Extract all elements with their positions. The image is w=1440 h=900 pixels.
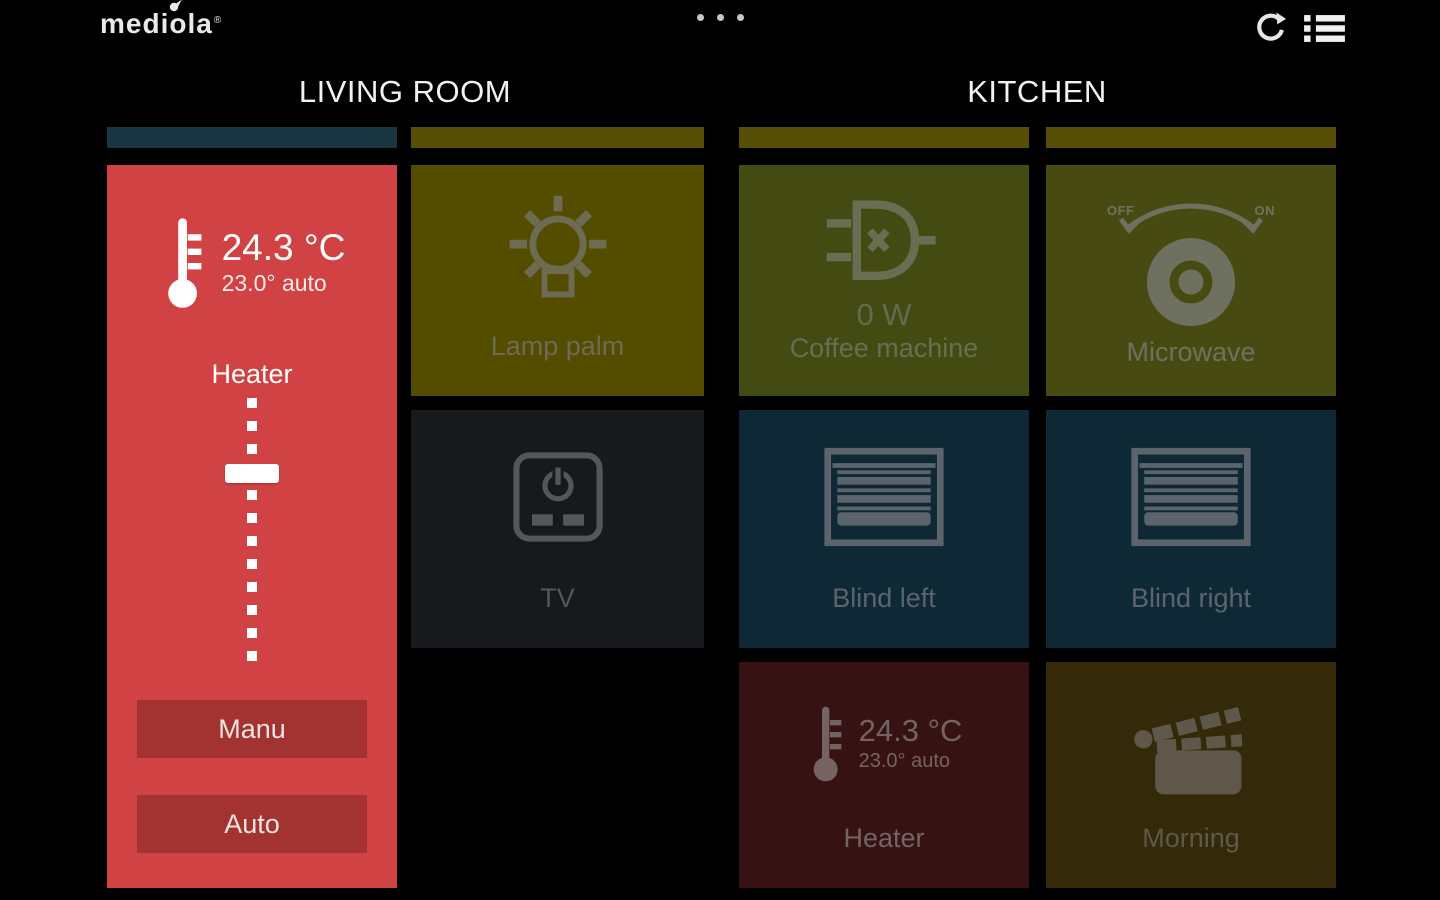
page-dot[interactable] (697, 14, 704, 21)
page-dot[interactable] (717, 14, 724, 21)
partial-tile-strip[interactable] (1046, 127, 1336, 148)
current-temperature: 24.3 °C (859, 715, 963, 748)
room-title-kitchen: KITCHEN (737, 74, 1337, 110)
temperature-slider-handle[interactable] (225, 464, 279, 483)
power-plug-icon (739, 195, 1029, 293)
tile-microwave[interactable]: OFF ON Microwave (1046, 165, 1336, 396)
thermometer-icon (159, 211, 207, 315)
blinds-icon (739, 410, 1029, 583)
power-consumption: 0 W (739, 297, 1029, 333)
mediola-logo: mediola® (100, 8, 222, 40)
dial-on-label: ON (1255, 203, 1276, 218)
current-temperature: 24.3 °C (222, 229, 346, 268)
dashboard: mediola® LIVING ROOM KITCHEN (0, 0, 1440, 900)
tile-morning-scene[interactable]: Morning (1046, 662, 1336, 888)
tile-tv[interactable]: TV (411, 410, 704, 648)
thermometer-icon (806, 700, 846, 788)
tile-label: Morning (1046, 823, 1336, 854)
tile-label: Heater (739, 823, 1029, 854)
page-dot[interactable] (737, 14, 744, 21)
mediola-bird-icon (168, 0, 183, 12)
temperature-slider-track[interactable] (247, 398, 257, 662)
clapperboard-icon (1046, 662, 1336, 823)
setpoint-temperature: 23.0° auto (222, 270, 346, 297)
tile-label: Lamp palm (411, 331, 704, 362)
tile-heater-living[interactable]: 24.3 °C 23.0° auto Heater Manu Auto (107, 165, 397, 888)
light-bulb-icon (411, 165, 704, 331)
room-title-living-room: LIVING ROOM (105, 74, 705, 110)
tile-heater-kitchen[interactable]: 24.3 °C 23.0° auto Heater (739, 662, 1029, 888)
partial-tile-strip[interactable] (739, 127, 1029, 148)
dial-off-label: OFF (1107, 203, 1135, 218)
tile-label: Blind left (739, 583, 1029, 614)
tile-label: Heater (107, 359, 397, 390)
menu-list-icon[interactable] (1304, 14, 1345, 43)
logo-text: mediola (100, 8, 213, 39)
dial-knob-icon: OFF ON (1091, 187, 1291, 337)
partial-tile-strip[interactable] (411, 127, 704, 148)
tile-label: Blind right (1046, 583, 1336, 614)
auto-button[interactable]: Auto (137, 795, 367, 853)
tile-label: Coffee machine (739, 333, 1029, 364)
remote-control-icon (411, 410, 704, 583)
tile-label: Microwave (1046, 337, 1336, 368)
manu-button[interactable]: Manu (137, 700, 367, 758)
tile-coffee-machine[interactable]: 0 W Coffee machine (739, 165, 1029, 396)
tile-label: TV (411, 583, 704, 614)
page-indicator[interactable] (0, 14, 1440, 21)
refresh-icon[interactable] (1253, 12, 1286, 45)
partial-tile-strip[interactable] (107, 127, 397, 148)
tile-lamp-palm[interactable]: Lamp palm (411, 165, 704, 396)
tile-blind-right[interactable]: Blind right (1046, 410, 1336, 648)
setpoint-temperature: 23.0° auto (859, 750, 963, 773)
tile-blind-left[interactable]: Blind left (739, 410, 1029, 648)
blinds-icon (1046, 410, 1336, 583)
